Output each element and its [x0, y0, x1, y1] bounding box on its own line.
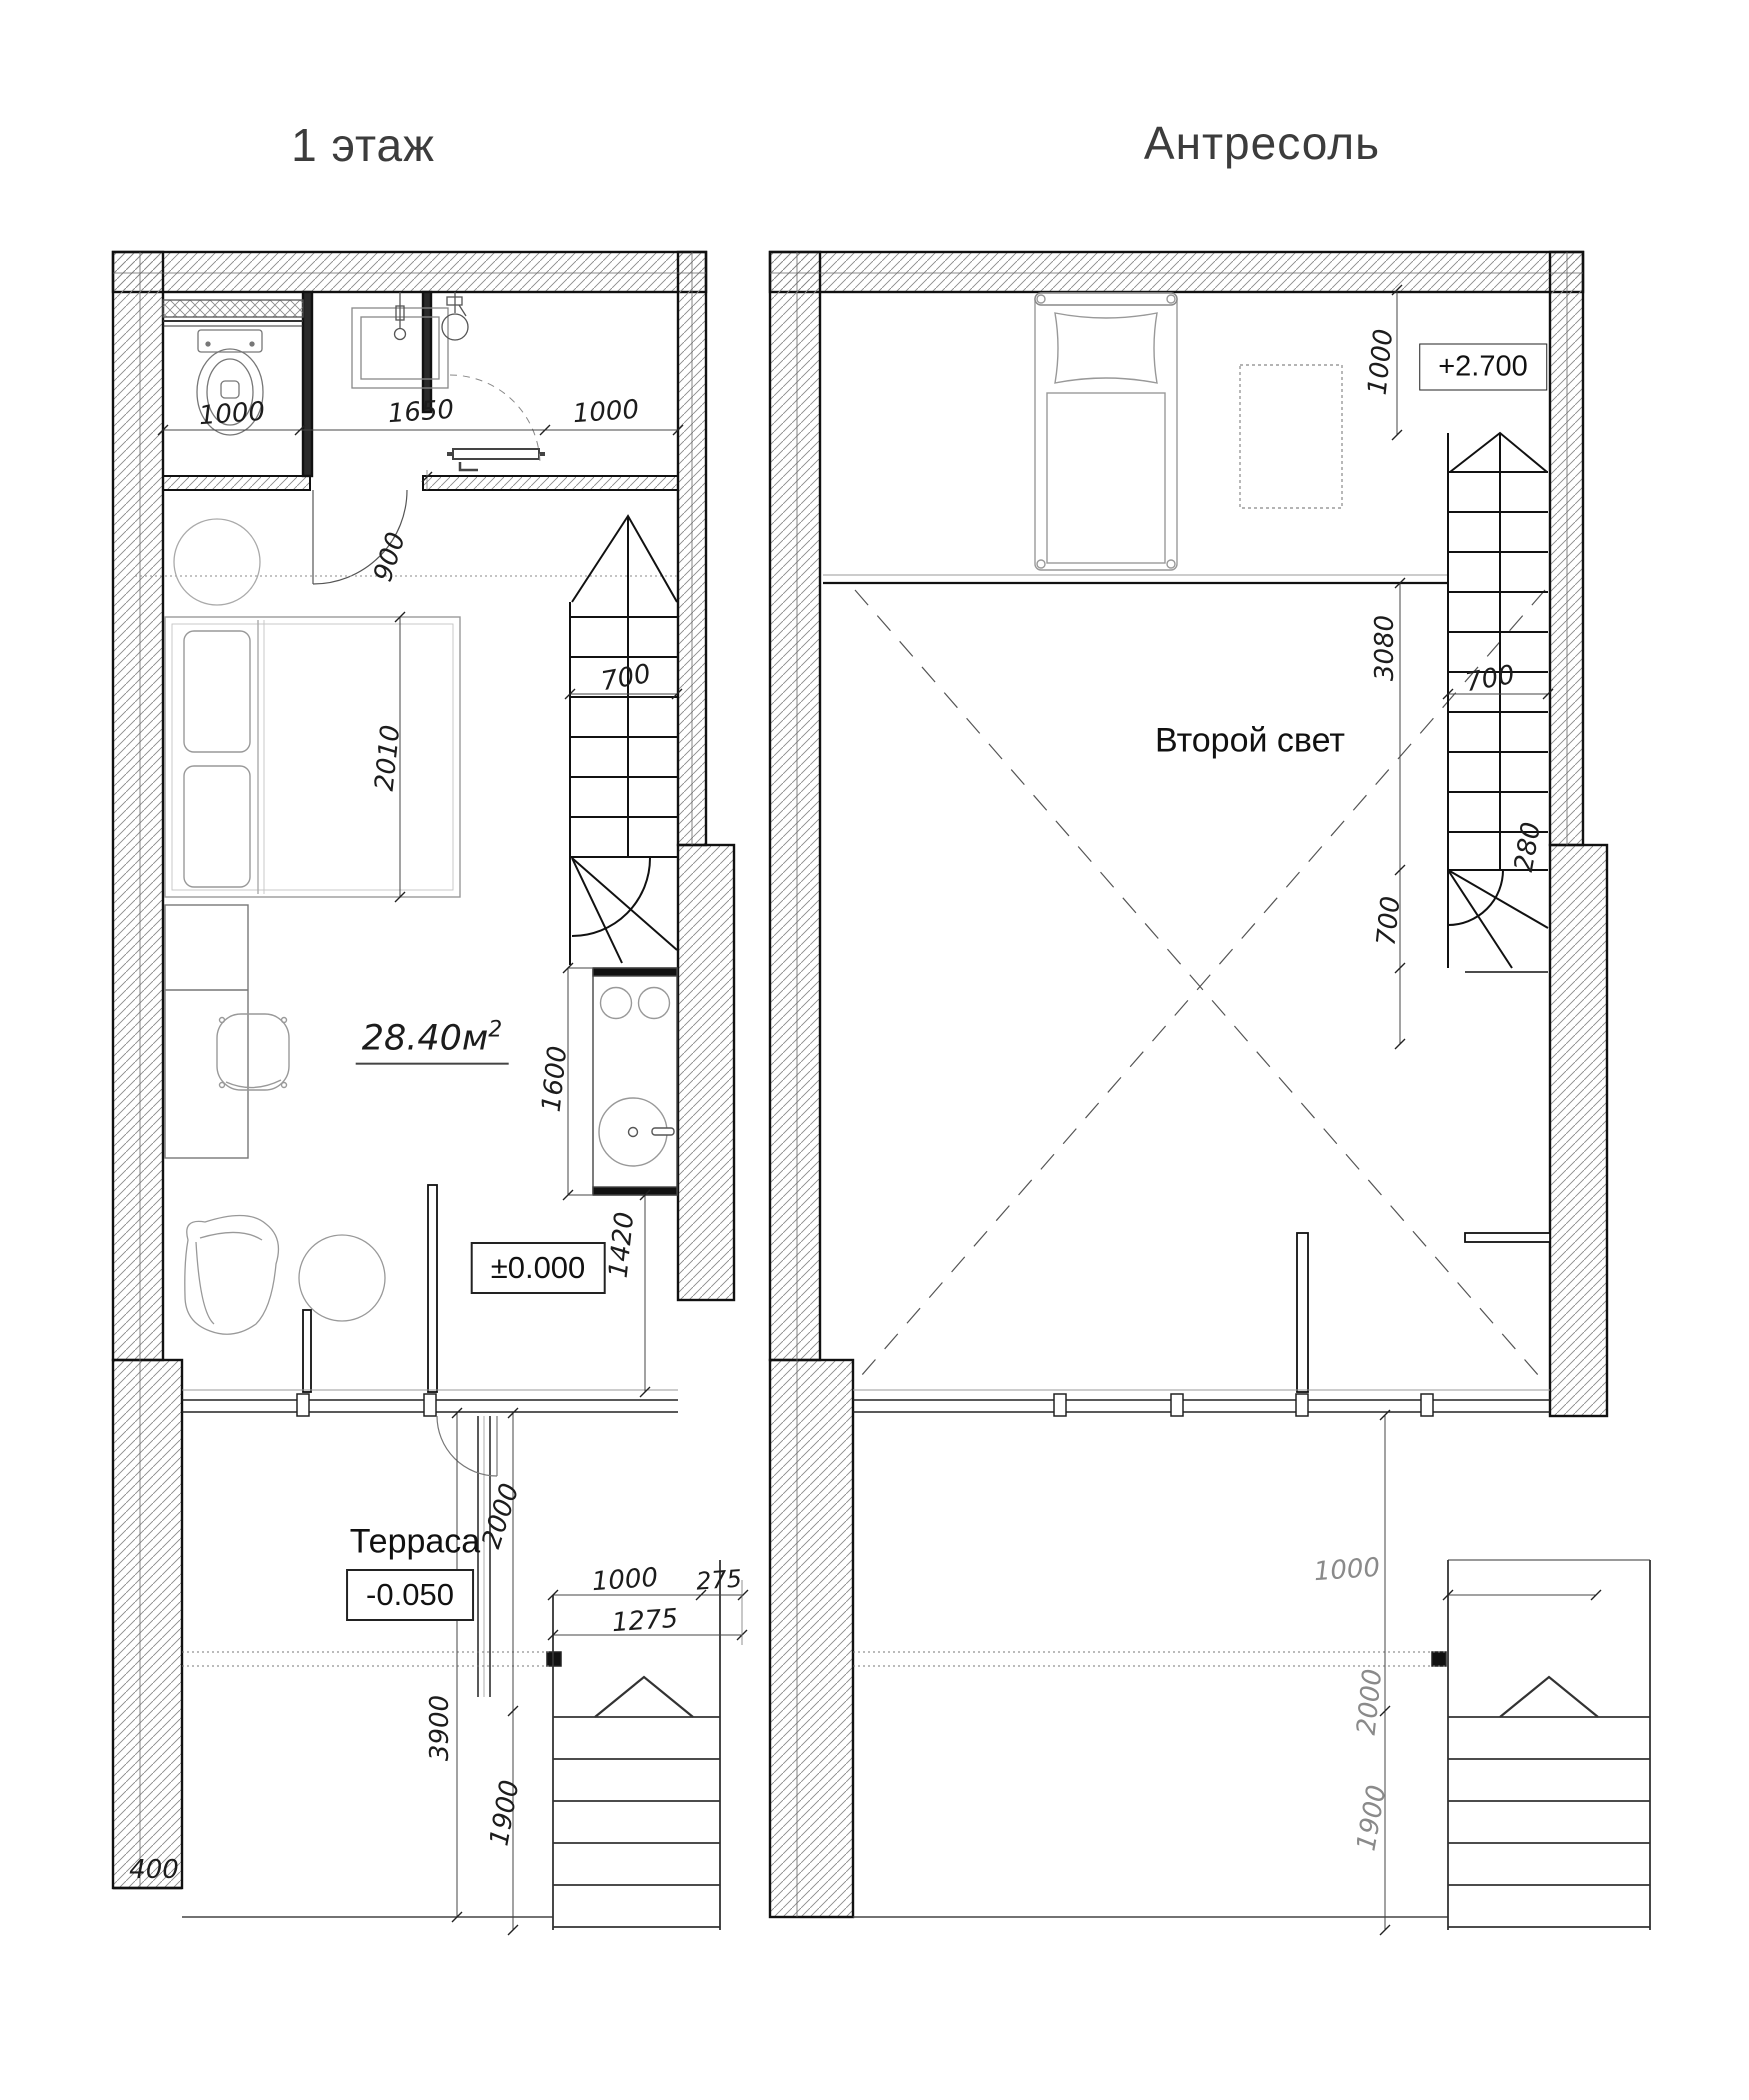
- level-main-value: ±0.000: [491, 1250, 586, 1285]
- shower: [442, 292, 468, 340]
- left-plan-partition-stubs: [303, 1185, 437, 1392]
- terrace-door: [437, 1416, 497, 1476]
- bed-single: [1035, 293, 1177, 570]
- armchair: [185, 1215, 279, 1334]
- bed-double: [165, 617, 460, 897]
- dim-ext-stair-total: 1275: [611, 1604, 679, 1639]
- dim-bath-mid: 1650: [387, 395, 455, 430]
- level-mezzanine-value: +2.700: [1438, 351, 1528, 383]
- mezzanine-floor-edge: [823, 575, 1448, 583]
- dim-void-length: 3080: [1370, 615, 1400, 681]
- void-label: Второй свет: [1155, 722, 1345, 761]
- rug: [1240, 365, 1342, 508]
- towel-rail: [447, 449, 545, 470]
- floorplan-drawing: [0, 0, 1749, 2100]
- level-mezzanine-box: +2.700: [1419, 344, 1547, 391]
- right-plan-partition-stubs: [1297, 1233, 1550, 1392]
- dim-ext-stair-width-left: 1000: [591, 1563, 659, 1598]
- dim-ext-stair-offset: 275: [695, 1564, 743, 1595]
- area-label: 28.40м2: [356, 1018, 509, 1065]
- terrace-label: Терраса: [350, 1523, 480, 1562]
- dim-winder: 700: [1371, 895, 1406, 948]
- side-pouf: [174, 519, 260, 605]
- area-sup: 2: [488, 1018, 502, 1043]
- right-plan-glazing: [853, 1390, 1550, 1666]
- sink: [352, 292, 448, 388]
- dim-wall-offset: 400: [129, 1855, 179, 1885]
- right-plan-title: Антресоль: [1144, 116, 1380, 170]
- desk: [165, 905, 248, 1158]
- level-main-box: ±0.000: [471, 1242, 606, 1294]
- dim-ext-stair-width-right: 1000: [1313, 1553, 1381, 1588]
- stair-interior-left: [570, 516, 677, 965]
- kitchen-unit: [593, 968, 677, 1195]
- level-terrace-value: -0.050: [366, 1577, 454, 1612]
- left-plan-title: 1 этаж: [291, 118, 435, 172]
- shower-door-swing: [450, 375, 540, 465]
- stair-exterior-right: [1448, 1560, 1650, 1930]
- floorplan-canvas: 1 этаж Антресоль 28.40м2 Терраса Второй …: [0, 0, 1749, 2100]
- dim-bath-right: 1000: [572, 395, 640, 430]
- void-cross: [855, 590, 1545, 1383]
- dim-bath-left: 1000: [198, 397, 266, 432]
- right-plan-walls: [770, 252, 1607, 1917]
- coffee-table: [299, 1235, 385, 1321]
- area-value: 28.40м: [362, 1018, 489, 1058]
- level-terrace-box: -0.050: [346, 1569, 474, 1621]
- dim-terrace-depth: 3900: [425, 1695, 455, 1761]
- stair-interior-right: [1448, 433, 1548, 972]
